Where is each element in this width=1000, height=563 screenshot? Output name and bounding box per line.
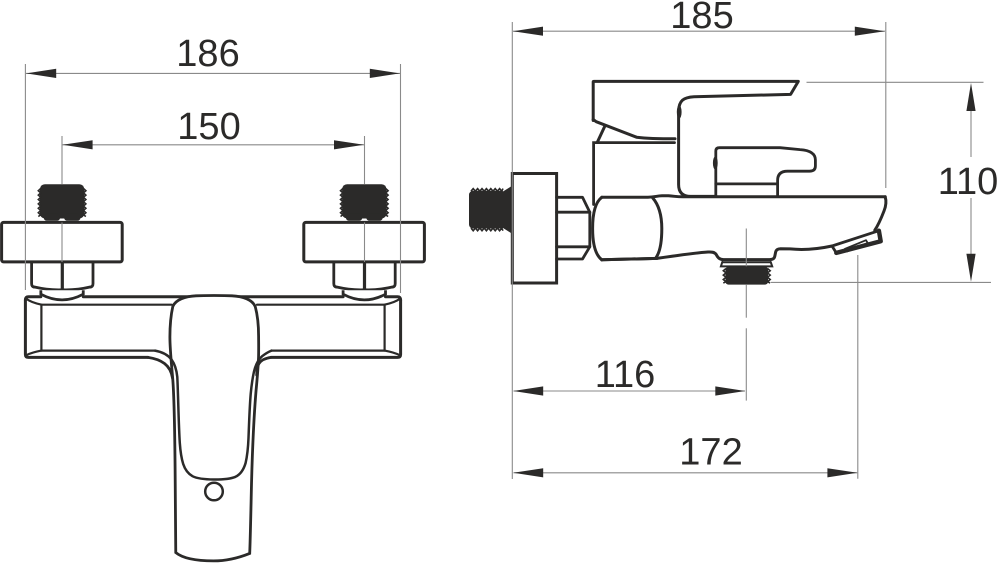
svg-text:186: 186 (176, 33, 239, 75)
svg-text:150: 150 (177, 106, 240, 148)
svg-text:110: 110 (938, 161, 999, 203)
svg-text:185: 185 (670, 0, 733, 37)
svg-text:172: 172 (679, 432, 742, 474)
svg-text:116: 116 (595, 354, 656, 396)
